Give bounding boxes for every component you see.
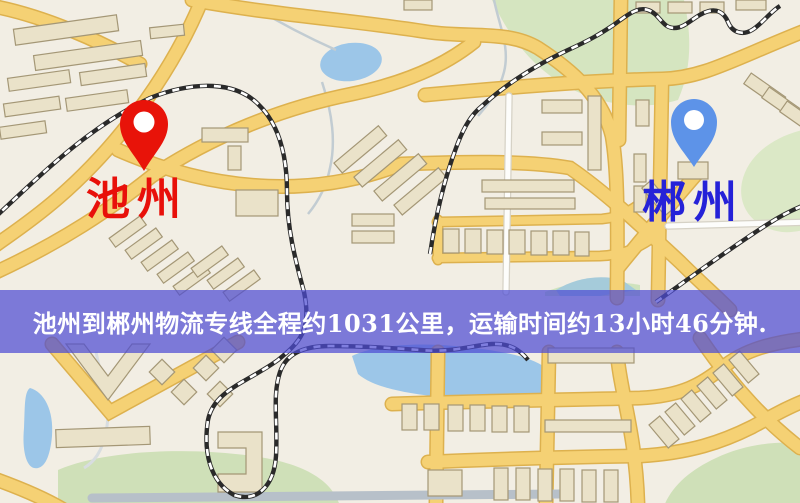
grey-road [92,494,560,498]
origin-city-label: 池州 [86,178,188,222]
destination-city-label: 郴州 [642,181,744,225]
pin-hole [684,110,704,130]
route-info-banner: 池州到郴州物流专线全程约1031公里，运输时间约13小时46分钟. [0,290,800,353]
map-canvas[interactable] [0,0,800,503]
pin-hole [134,112,155,133]
route-info-text: 池州到郴州物流专线全程约1031公里，运输时间约13小时46分钟. [33,304,767,339]
map-view[interactable]: 池州 郴州 池州到郴州物流专线全程约1031公里，运输时间约13小时46分钟. [0,0,800,503]
